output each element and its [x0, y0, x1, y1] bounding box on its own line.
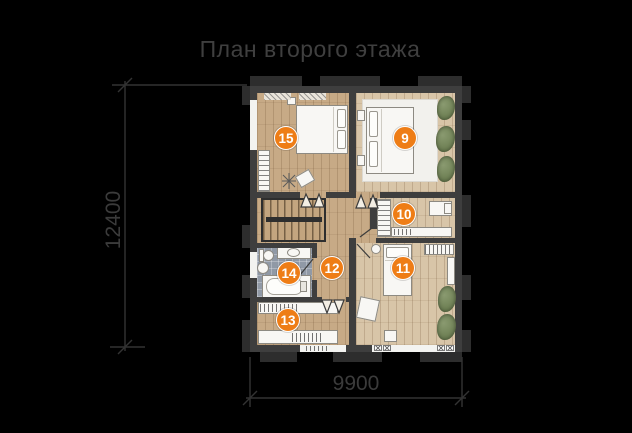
room-marker-9: 9	[393, 126, 417, 150]
plan-annotations	[0, 0, 632, 433]
floor-plan-page: План второго этажа	[0, 0, 632, 433]
room-marker-14: 14	[277, 261, 301, 285]
room-marker-15: 15	[274, 126, 298, 150]
door-symbols	[300, 194, 378, 313]
room-marker-12: 12	[320, 256, 344, 280]
room-marker-10: 10	[392, 202, 416, 226]
room-marker-13: 13	[276, 308, 300, 332]
room-marker-11: 11	[391, 256, 415, 280]
floor-lamp-icon	[282, 173, 296, 189]
